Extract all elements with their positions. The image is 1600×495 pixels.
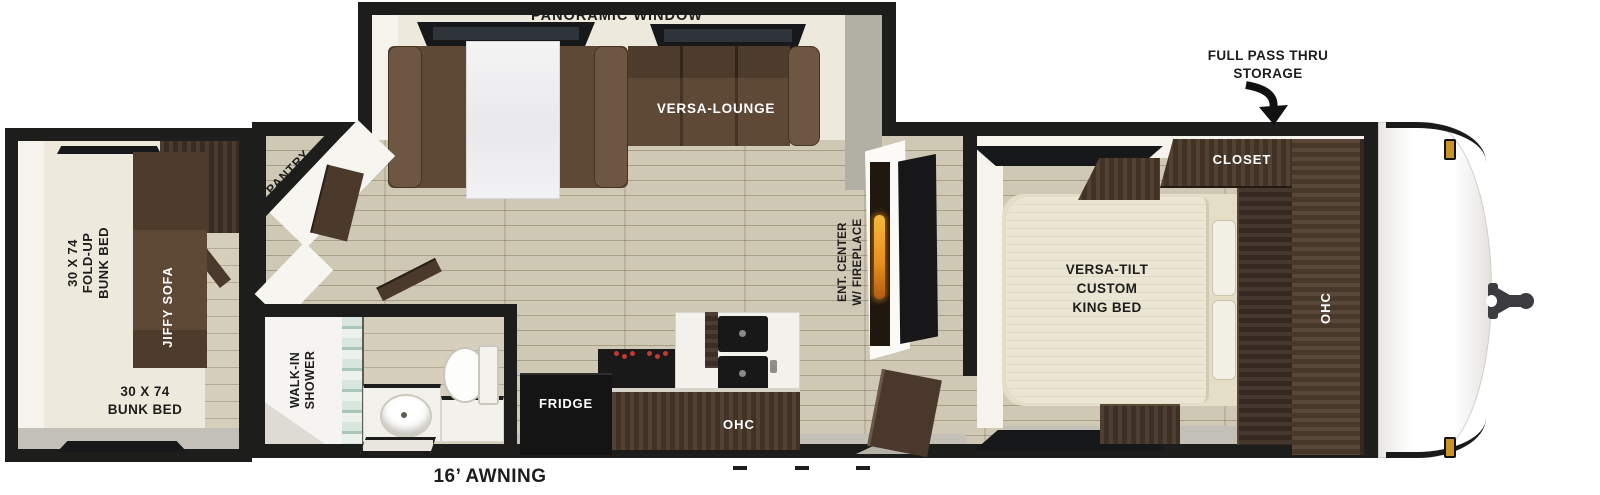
panoramic-window-right-glass — [664, 29, 792, 42]
kitchen-ohc-label: OHC — [699, 417, 779, 432]
kitchen-faucet — [770, 360, 777, 373]
ent-center-label: ENT. CENTER W/ FIREPLACE — [836, 197, 866, 327]
awning-tick — [856, 466, 870, 470]
basin-drain — [739, 330, 746, 337]
marker-light-top — [1444, 139, 1456, 160]
wardrobe — [1237, 188, 1292, 445]
front-cap-trim-bottom — [1386, 408, 1486, 458]
bed-foot-dresser — [1100, 404, 1180, 444]
stove-burner — [647, 351, 652, 356]
versa-lounge-back — [628, 46, 790, 80]
panoramic-window-label: PANORAMIC WINDOW — [487, 8, 747, 25]
awning-tick — [795, 466, 809, 470]
bunk-window-bottom — [57, 441, 187, 452]
fold-up-bunk-label: 30 X 74 FOLD-UP BUNK BED — [64, 203, 112, 323]
basin-drain — [739, 370, 746, 377]
fireplace-flame — [874, 215, 885, 299]
rv-floorplan: PANORAMIC WINDOW FULL PASS THRU STORAGE … — [0, 0, 1600, 495]
front-cap-trim-top — [1386, 122, 1486, 172]
bedroom-ohc-label: OHC — [1318, 278, 1334, 338]
sofa-bed-blanket — [466, 41, 560, 199]
fridge — [520, 373, 612, 455]
jiffy-sofa-back-cushion — [133, 152, 207, 230]
stove-burner — [622, 354, 627, 359]
bunk-room-left-wall-face — [18, 141, 44, 449]
tv — [896, 154, 938, 344]
hitch-coupler — [1518, 293, 1534, 309]
sofa-bed-left-armrest — [388, 46, 422, 188]
hitch-notch — [1486, 295, 1497, 307]
sink-counter-side-panel — [705, 312, 718, 368]
sofa-bed-right-armrest — [594, 46, 628, 188]
shower-glass-door — [342, 317, 364, 444]
stove-burner — [655, 354, 660, 359]
fridge-label: FRIDGE — [522, 396, 610, 411]
panoramic-window-left-glass — [433, 27, 579, 40]
pass-thru-arrow — [1240, 80, 1296, 126]
stove-burner — [630, 351, 635, 356]
awning-tick — [733, 466, 747, 470]
stove-burner — [614, 351, 619, 356]
stove-burner — [663, 351, 668, 356]
bunk-bed-label: 30 X 74 BUNK BED — [65, 383, 225, 419]
jiffy-sofa-label: JIFFY SOFA — [160, 257, 176, 357]
sink-drain — [401, 412, 407, 418]
bed-pillow — [1212, 220, 1236, 296]
toilet-tank — [478, 345, 499, 405]
full-pass-thru-label: FULL PASS THRU STORAGE — [1182, 47, 1354, 82]
bedroom-partition-wall — [963, 136, 977, 376]
versa-lounge-armrest — [788, 46, 820, 146]
bed-pillow — [1212, 300, 1236, 380]
marker-light-bottom — [1444, 437, 1456, 458]
king-bed-label: VERSA-TILT CUSTOM KING BED — [1037, 261, 1177, 318]
walk-in-shower-label: WALK-IN SHOWER — [288, 325, 318, 435]
bedroom-wall-face — [977, 136, 1003, 428]
versa-lounge-label: VERSA-LOUNGE — [636, 101, 796, 117]
awning-label: 16’ AWNING — [400, 466, 580, 488]
bath-mat — [360, 437, 436, 454]
closet-label: CLOSET — [1192, 152, 1292, 167]
